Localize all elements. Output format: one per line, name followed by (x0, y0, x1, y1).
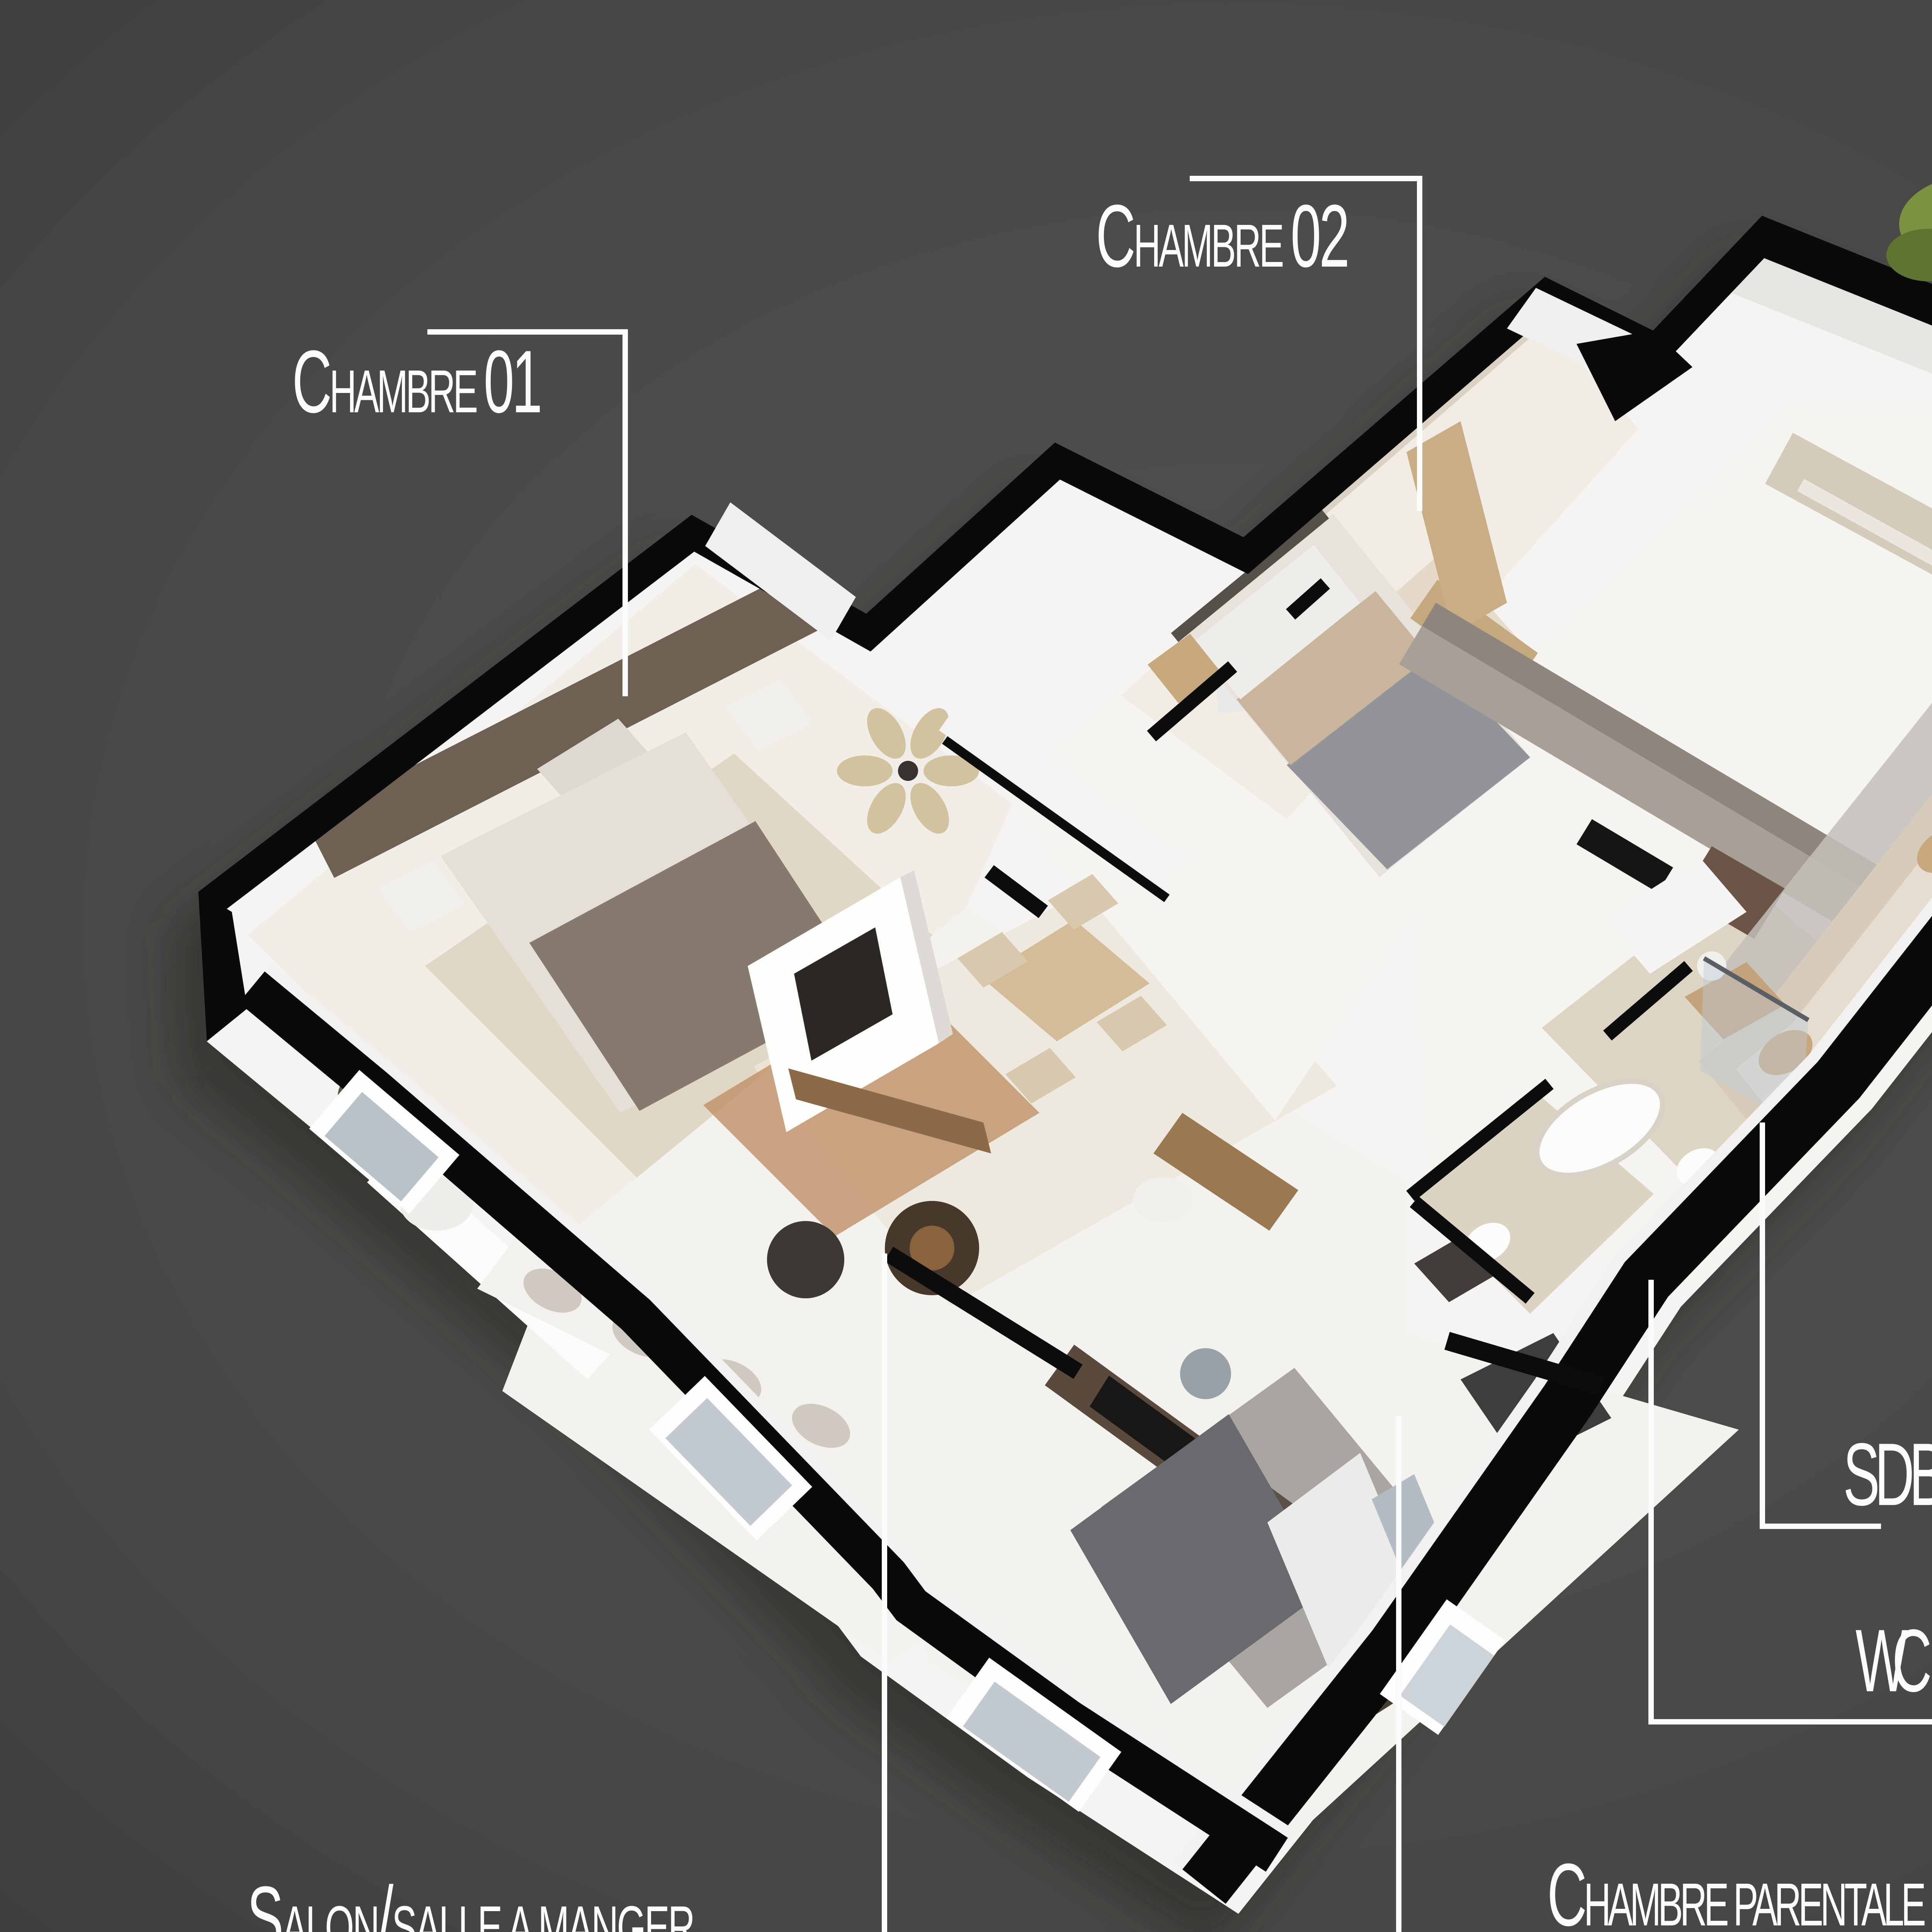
svg-text:SDB/WC: SDB/WC (1843, 1425, 1932, 1524)
svg-text:WC: WC (1855, 1611, 1932, 1710)
